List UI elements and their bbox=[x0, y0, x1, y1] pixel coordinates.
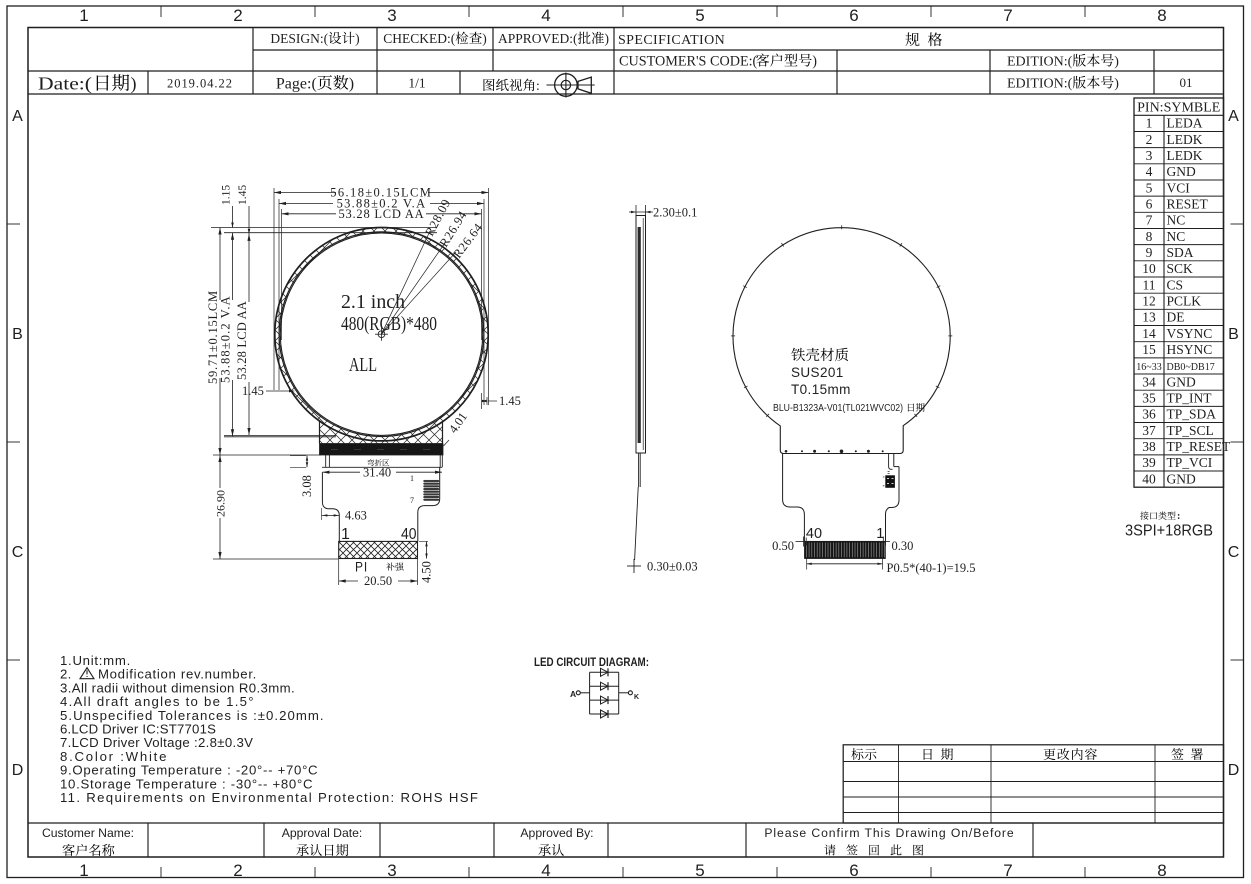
svg-text:40: 40 bbox=[806, 526, 822, 542]
svg-text:TP_RESET: TP_RESET bbox=[1167, 439, 1232, 454]
svg-text:3: 3 bbox=[1146, 148, 1153, 163]
svg-text:A: A bbox=[12, 108, 23, 125]
svg-text:11. Requirements on Environmen: 11. Requirements on Environmental Protec… bbox=[60, 790, 479, 805]
svg-text:8: 8 bbox=[1157, 861, 1166, 880]
svg-text:CHECKED:(: CHECKED:( bbox=[383, 31, 456, 46]
svg-text:Customer Name:: Customer Name: bbox=[42, 826, 134, 840]
svg-text:DB0~DB17: DB0~DB17 bbox=[1167, 362, 1215, 373]
svg-text:0.30: 0.30 bbox=[892, 539, 914, 553]
svg-text:TP_VCI: TP_VCI bbox=[1167, 455, 1213, 470]
svg-text:1: 1 bbox=[341, 526, 350, 543]
svg-text:12: 12 bbox=[1142, 294, 1156, 309]
svg-text:36: 36 bbox=[1142, 407, 1156, 422]
svg-text:53.88±0.2 V.A: 53.88±0.2 V.A bbox=[219, 295, 233, 383]
svg-text:53.28 LCD AA: 53.28 LCD AA bbox=[339, 207, 425, 221]
svg-text:VCI: VCI bbox=[1167, 180, 1191, 195]
svg-text:6: 6 bbox=[849, 6, 858, 25]
svg-text:LEDK: LEDK bbox=[1167, 148, 1203, 163]
svg-text:2: 2 bbox=[233, 861, 242, 880]
svg-text:): ) bbox=[812, 54, 817, 70]
svg-text:16~33: 16~33 bbox=[1136, 362, 1161, 373]
svg-text:6: 6 bbox=[1146, 197, 1153, 212]
svg-text:4.63: 4.63 bbox=[345, 509, 367, 523]
svg-text:40: 40 bbox=[401, 526, 417, 543]
svg-text:3.08: 3.08 bbox=[300, 475, 314, 497]
svg-text:1.45: 1.45 bbox=[237, 185, 249, 205]
svg-text:10: 10 bbox=[1142, 261, 1156, 276]
svg-text:20.50: 20.50 bbox=[364, 574, 392, 588]
svg-text:): ) bbox=[1114, 55, 1119, 70]
svg-text:EDITION:(: EDITION:( bbox=[1007, 77, 1073, 92]
svg-text:1.45: 1.45 bbox=[242, 384, 264, 398]
svg-text:7: 7 bbox=[1003, 861, 1012, 880]
svg-text:A: A bbox=[1228, 108, 1239, 125]
svg-text:7: 7 bbox=[1146, 213, 1153, 228]
svg-text:1/1: 1/1 bbox=[408, 76, 425, 91]
svg-text:PI: PI bbox=[355, 559, 368, 575]
svg-text:8: 8 bbox=[1146, 229, 1153, 244]
svg-text:4: 4 bbox=[1146, 164, 1153, 179]
svg-text:1.15: 1.15 bbox=[221, 185, 233, 205]
svg-text:): ) bbox=[605, 31, 610, 46]
svg-text:8: 8 bbox=[1157, 6, 1166, 25]
svg-text:Approved By:: Approved By: bbox=[520, 826, 593, 840]
svg-text:1: 1 bbox=[1146, 116, 1153, 131]
svg-text:SPECIFICATION: SPECIFICATION bbox=[618, 33, 725, 48]
svg-text:9: 9 bbox=[1146, 245, 1153, 260]
svg-text:31.40: 31.40 bbox=[363, 466, 391, 480]
svg-text:15: 15 bbox=[1142, 342, 1156, 357]
svg-text:CS: CS bbox=[1167, 277, 1184, 292]
svg-text:2.30±0.1: 2.30±0.1 bbox=[653, 206, 697, 220]
svg-text:HSYNC: HSYNC bbox=[1167, 342, 1213, 357]
svg-text:P0.5*(40-1)=19.5: P0.5*(40-1)=19.5 bbox=[887, 561, 976, 575]
svg-text:38: 38 bbox=[1142, 439, 1156, 454]
svg-text:13: 13 bbox=[1142, 310, 1156, 325]
svg-text:2.1 inch: 2.1 inch bbox=[341, 291, 405, 313]
svg-text:14: 14 bbox=[1142, 326, 1156, 341]
svg-text:SCK: SCK bbox=[1167, 261, 1194, 276]
svg-text:B: B bbox=[12, 326, 23, 343]
svg-text:BLU-B1323A-V01(TL021WVC02): BLU-B1323A-V01(TL021WVC02) bbox=[773, 403, 903, 414]
svg-text:1: 1 bbox=[410, 474, 414, 483]
svg-text:2: 2 bbox=[233, 6, 242, 25]
svg-text:0.50: 0.50 bbox=[772, 539, 794, 553]
svg-text:34: 34 bbox=[1142, 374, 1156, 389]
svg-text:TP_SCL: TP_SCL bbox=[1167, 423, 1214, 438]
svg-text:SDA: SDA bbox=[1167, 245, 1194, 260]
svg-text:Please Confirm This Drawing On: Please Confirm This Drawing On/Before bbox=[764, 826, 1014, 840]
svg-text:): ) bbox=[482, 31, 487, 46]
svg-text:D: D bbox=[12, 762, 24, 779]
svg-text:DE: DE bbox=[1167, 310, 1185, 325]
svg-text:3SPI+18RGB: 3SPI+18RGB bbox=[1125, 523, 1213, 540]
svg-text:37: 37 bbox=[1142, 423, 1156, 438]
svg-text:5: 5 bbox=[695, 861, 704, 880]
svg-text:4: 4 bbox=[541, 861, 550, 880]
svg-text:26.90: 26.90 bbox=[214, 490, 228, 517]
svg-text:Date:(: Date:( bbox=[38, 74, 92, 95]
svg-text:TP_INT: TP_INT bbox=[1167, 391, 1213, 406]
svg-text:): ) bbox=[131, 74, 137, 95]
svg-text:LEDA: LEDA bbox=[1167, 116, 1203, 131]
svg-text:PCLK: PCLK bbox=[1167, 294, 1202, 309]
svg-text:1: 1 bbox=[79, 6, 88, 25]
svg-text:5: 5 bbox=[1146, 180, 1153, 195]
svg-text:B: B bbox=[1228, 326, 1239, 343]
svg-text:NC: NC bbox=[1167, 229, 1186, 244]
svg-text:Page:(: Page:( bbox=[276, 76, 317, 93]
svg-text:7: 7 bbox=[1003, 6, 1012, 25]
svg-text:TP_SDA: TP_SDA bbox=[1167, 407, 1217, 422]
svg-text:VSYNC: VSYNC bbox=[1167, 326, 1213, 341]
svg-text:7: 7 bbox=[410, 496, 414, 505]
svg-text:): ) bbox=[355, 31, 360, 46]
svg-text:GND: GND bbox=[1167, 471, 1196, 486]
svg-text:GND: GND bbox=[1167, 374, 1196, 389]
svg-text:EDITION:(: EDITION:( bbox=[1007, 55, 1073, 70]
svg-text:5: 5 bbox=[695, 6, 704, 25]
svg-text:39: 39 bbox=[1142, 455, 1156, 470]
svg-text:2019.04.22: 2019.04.22 bbox=[167, 77, 233, 91]
svg-text:DESIGN:(: DESIGN:( bbox=[270, 31, 328, 46]
svg-text:01: 01 bbox=[1180, 75, 1193, 90]
svg-text:2: 2 bbox=[1146, 132, 1153, 147]
svg-text:35: 35 bbox=[1142, 391, 1156, 406]
svg-text:ALL: ALL bbox=[349, 354, 377, 376]
svg-text:CUSTOMER'S CODE:(: CUSTOMER'S CODE:( bbox=[619, 54, 758, 70]
svg-text:D: D bbox=[1228, 762, 1240, 779]
svg-text::: : bbox=[536, 78, 540, 93]
svg-text:T0.15mm: T0.15mm bbox=[791, 382, 851, 397]
svg-text:): ) bbox=[349, 76, 354, 93]
svg-text:3: 3 bbox=[387, 6, 396, 25]
svg-text:11: 11 bbox=[1143, 277, 1156, 292]
svg-text:K: K bbox=[634, 694, 639, 701]
svg-text:RESET: RESET bbox=[1167, 197, 1209, 212]
svg-text:SUS201: SUS201 bbox=[791, 365, 844, 380]
svg-text:53.28 LCD AA: 53.28 LCD AA bbox=[235, 301, 249, 380]
svg-text:A: A bbox=[570, 689, 576, 699]
svg-text:4: 4 bbox=[541, 6, 550, 25]
svg-text:C: C bbox=[12, 544, 24, 561]
svg-text:1: 1 bbox=[79, 861, 88, 880]
svg-text:Approval Date:: Approval Date: bbox=[282, 826, 363, 840]
svg-text:): ) bbox=[1114, 77, 1119, 92]
svg-text:GND: GND bbox=[1167, 164, 1196, 179]
svg-text:0.30±0.03: 0.30±0.03 bbox=[647, 560, 698, 574]
svg-text:4.50: 4.50 bbox=[420, 561, 434, 583]
svg-text:C: C bbox=[1228, 544, 1240, 561]
svg-text:APPROVED:(: APPROVED:( bbox=[498, 31, 578, 46]
svg-text:LEDK: LEDK bbox=[1167, 132, 1203, 147]
svg-text::: : bbox=[1177, 511, 1180, 522]
svg-text:LED CIRCUIT DIAGRAM:: LED CIRCUIT DIAGRAM: bbox=[534, 657, 649, 669]
svg-text:6: 6 bbox=[849, 861, 858, 880]
svg-text:40: 40 bbox=[1142, 471, 1156, 486]
svg-text:NC: NC bbox=[1167, 213, 1186, 228]
svg-text:PIN:SYMBLE: PIN:SYMBLE bbox=[1137, 101, 1220, 116]
svg-text:3: 3 bbox=[387, 861, 396, 880]
svg-text:1.45: 1.45 bbox=[499, 394, 521, 408]
